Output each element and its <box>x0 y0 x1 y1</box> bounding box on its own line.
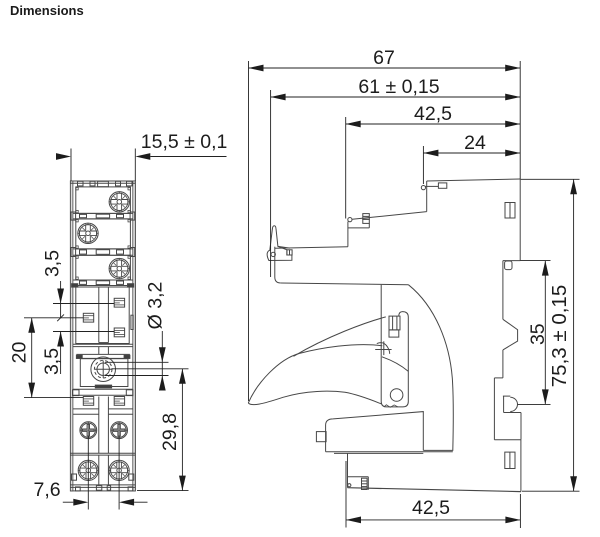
svg-text:20: 20 <box>9 342 31 364</box>
svg-text:67: 67 <box>373 47 395 69</box>
svg-text:75,3 ± 0,15: 75,3 ± 0,15 <box>548 285 571 387</box>
svg-text:15,5 ± 0,1: 15,5 ± 0,1 <box>141 131 228 153</box>
svg-text:7,6: 7,6 <box>34 479 61 501</box>
svg-text:24: 24 <box>464 132 486 154</box>
svg-text:Ø 3,2: Ø 3,2 <box>145 282 167 330</box>
svg-text:3,5: 3,5 <box>42 250 64 277</box>
svg-text:42,5: 42,5 <box>412 497 450 519</box>
svg-text:3,5: 3,5 <box>41 348 63 375</box>
svg-text:61 ± 0,15: 61 ± 0,15 <box>358 76 439 98</box>
svg-text:42,5: 42,5 <box>414 103 452 125</box>
svg-text:35: 35 <box>527 323 549 345</box>
svg-text:29,8: 29,8 <box>159 413 181 451</box>
